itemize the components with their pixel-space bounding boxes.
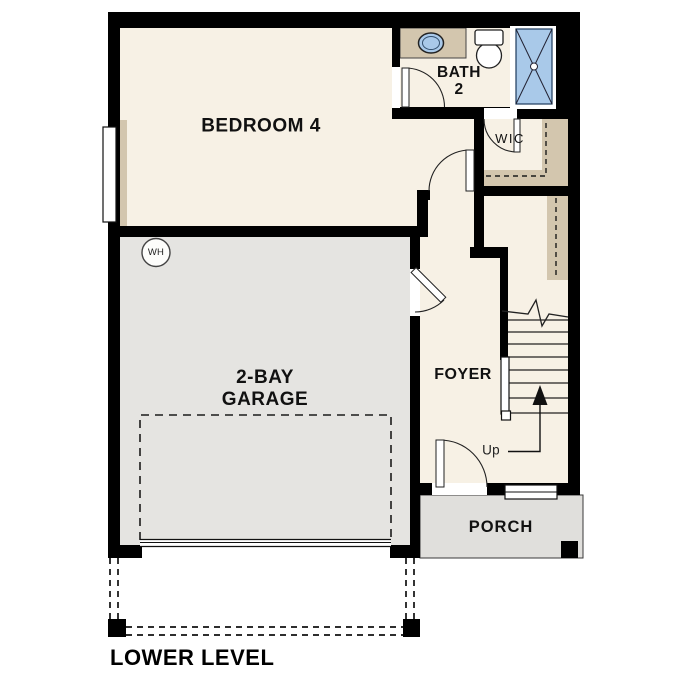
porch-window (505, 485, 557, 499)
stair-railing (501, 357, 511, 420)
garage-label-line1: 2-BAY (222, 367, 308, 389)
porch-post (561, 541, 578, 558)
foyer-label: FOYER (434, 366, 492, 384)
shower (510, 26, 556, 109)
garage-label-line2: GARAGE (222, 389, 308, 411)
wic-label: WIC (495, 132, 525, 146)
driveway-post-right (403, 619, 420, 637)
driveway-post-left (108, 619, 126, 637)
porch-label: PORCH (469, 518, 534, 536)
bedroom4-label: BEDROOM 4 (201, 117, 321, 138)
sink (419, 33, 444, 53)
floor-plan-drawing (0, 0, 687, 687)
closet-shelf (547, 196, 568, 280)
bath-label-line2: 2 (437, 81, 481, 98)
toilet (475, 30, 503, 68)
driveway-outline (110, 558, 414, 635)
garage-label: 2-BAY GARAGE (222, 367, 308, 411)
bath-label: BATH 2 (437, 64, 481, 98)
water-heater-label: WH (148, 248, 164, 258)
up-label: Up (482, 444, 500, 459)
plan-title: LOWER LEVEL (110, 646, 274, 670)
garage-door (140, 539, 391, 547)
wic-shelf-bottom (480, 170, 542, 186)
bath-label-line1: BATH (437, 64, 481, 81)
bedroom-window (103, 127, 116, 222)
floor-plan: BEDROOM 4 BATH 2 WIC FOYER 2-BAY GARAGE … (0, 0, 687, 687)
